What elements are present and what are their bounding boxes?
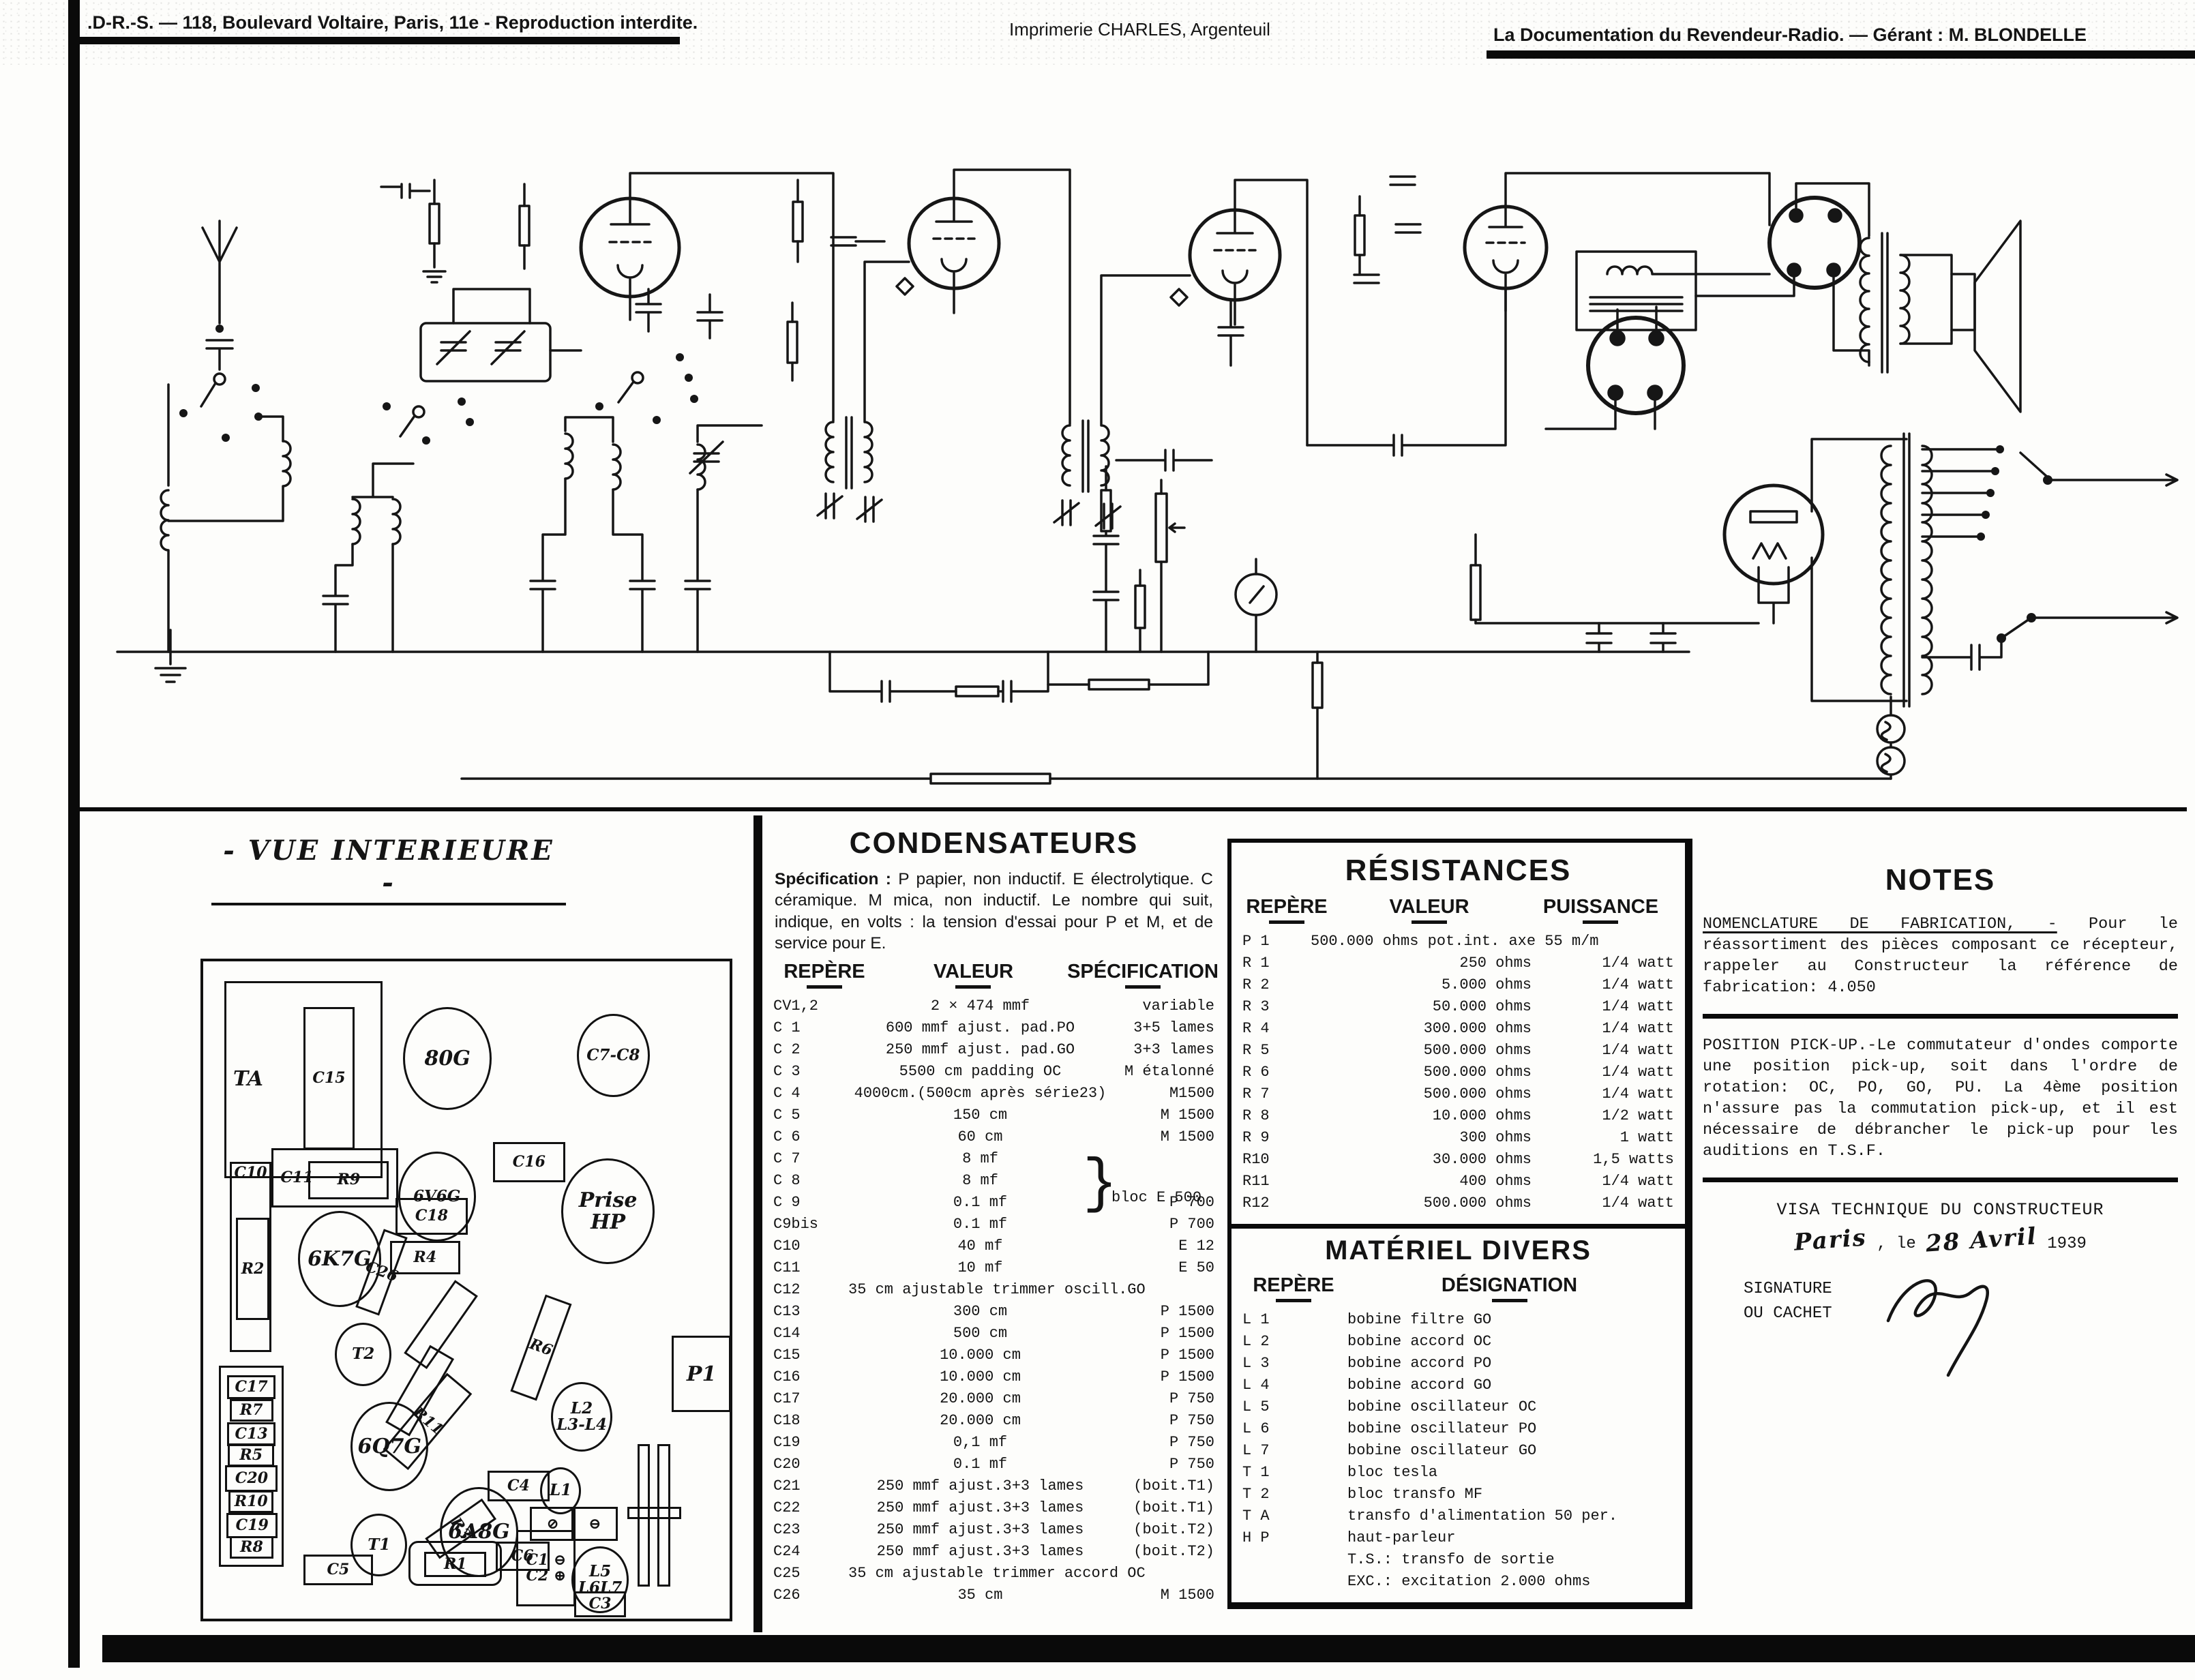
table-row: C12 35 cm ajustable trimmer oscill.GO [773,1279,1214,1301]
table-row: C13 300 cm P 1500 [773,1301,1214,1323]
table-row: R 3 50.000 ohms 1/4 watt [1242,996,1674,1018]
note-position-pickup: POSITION PICK-UP.-Le commutateur d'ondes… [1703,1035,2178,1162]
table-row: R 8 10.000 ohms 1/2 watt [1242,1105,1674,1127]
resistances-title: RÉSISTANCES [1242,854,1674,888]
table-row: L 5 bobine oscillateur OC [1242,1396,1674,1418]
col-repere: REPÈRE [1246,896,1327,924]
table-row: C 4 4000cm.(500cm après série23) M1500 [773,1083,1214,1105]
table-row: T A transfo d'alimentation 50 per. [1242,1505,1674,1527]
note-lead: NOMENCLATURE DE FABRICATION, - [1703,915,2057,933]
visa-day-handwritten: 28 Avril [1925,1222,2038,1257]
table-row: T 2 bloc transfo MF [1242,1484,1674,1505]
col-valeur: VALEUR [934,961,1013,989]
table-row: C26 35 cm M 1500 [773,1585,1214,1606]
table-row: EXC.: excitation 2.000 ohms [1242,1571,1674,1593]
table-row: C14 500 cm P 1500 [773,1323,1214,1345]
table-row: C23 250 mmf ajust.3+3 lames (boit.T2) [773,1519,1214,1541]
visa-line: VISA TECHNIQUE DU CONSTRUCTEUR [1703,1200,2178,1220]
vue-interieure-panel: - VUE INTERIEURE - TAC15C16C10R2C11R9C18… [89,815,747,1632]
chassis-part-labels [203,961,730,1619]
col-repere: REPÈRE [783,961,865,989]
col-valeur: VALEUR [1389,896,1469,924]
resistances-box: RÉSISTANCES REPÈRE VALEUR PUISSANCE P 1 … [1227,839,1692,1609]
table-row: L 7 bobine oscillateur GO [1242,1440,1674,1462]
table-row: C17 20.000 cm P 750 [773,1388,1214,1410]
table-row: R11 400 ohms 1/4 watt [1242,1171,1674,1192]
table-row: C18 20.000 cm P 750 [773,1410,1214,1432]
condensateurs-title: CONDENSATEURS [773,826,1214,860]
publication-title: La Documentation du Revendeur-Radio. — G… [1493,25,2087,46]
signature-caption-line2: OU CACHET [1744,1302,1832,1326]
table-row: L 6 bobine oscillateur PO [1242,1418,1674,1440]
signature-scribble [1880,1267,2071,1383]
table-row: R10 30.000 ohms 1,5 watts [1242,1149,1674,1171]
table-row: R 6 500.000 ohms 1/4 watt [1242,1062,1674,1083]
section-divider [1231,1224,1685,1229]
table-row: C 1 600 mmf ajust. pad.PO 3+5 lames [773,1017,1214,1039]
table-row: C 2 250 mmf ajust. pad.GO 3+3 lames [773,1039,1214,1061]
table-row: C 5 150 cm M 1500 [773,1105,1214,1126]
visa-year: 1939 [2047,1235,2087,1253]
table-row: C15 10.000 cm P 1500 [773,1345,1214,1366]
table-row: L 3 bobine accord PO [1242,1353,1674,1375]
col-puissance: PUISSANCE [1543,896,1658,924]
table-row: C25 35 cm ajustable trimmer accord OC [773,1563,1214,1585]
table-row: CV1,2 2 × 474 mmf variable [773,995,1214,1017]
chassis-outline: TAC15C16C10R2C11R9C18R4P1C17R7C13R5C20R1… [200,959,732,1621]
materiel-header: REPÈRE DÉSIGNATION [1242,1274,1674,1302]
visa-le: , le [1877,1235,1916,1253]
signature-caption: SIGNATURE OU CACHET [1744,1277,1832,1326]
condensateurs-spec-note: Spécification : P papier, non inductif. … [775,869,1213,954]
header-rule-left [80,37,680,44]
note-nomenclature: NOMENCLATURE DE FABRICATION, - Pour le r… [1703,914,2178,998]
table-row: C 3 5500 cm padding OC M étalonné [773,1061,1214,1083]
table-row: R 1 250 ohms 1/4 watt [1242,952,1674,974]
col-specification: SPÉCIFICATION [1067,961,1219,989]
table-row: H P haut-parleur [1242,1527,1674,1549]
notes-section: NOTES NOMENCLATURE DE FABRICATION, - Pou… [1703,815,2183,1632]
condensateurs-header: REPÈRE VALEUR SPÉCIFICATION [773,961,1214,989]
page-frame-left [68,0,80,1668]
table-row: C 7 8 mf [773,1148,1214,1170]
resistances-table: P 1 500.000 ohms pot.int. axe 55 m/m R 1… [1242,931,1674,1214]
table-row: R 4 300.000 ohms 1/4 watt [1242,1018,1674,1040]
table-row: R 9 300 ohms 1 watt [1242,1127,1674,1149]
page: { "header": { "left": ".D-R.-S. — 118, B… [0,0,2195,1680]
materiel-title: MATÉRIEL DIVERS [1242,1235,1674,1266]
visa-city-handwritten: Paris [1793,1224,1868,1256]
schematic-labels [80,57,2187,807]
table-row: T 1 bloc tesla [1242,1462,1674,1484]
publisher-address: .D-R.-S. — 118, Boulevard Voltaire, Pari… [87,12,698,33]
col-repere: REPÈRE [1253,1274,1334,1302]
resistances-section: RÉSISTANCES REPÈRE VALEUR PUISSANCE P 1 … [1227,815,1692,1632]
signature-caption-line1: SIGNATURE [1744,1277,1832,1302]
table-row: R 2 5.000 ohms 1/4 watt [1242,974,1674,996]
col-designation: DÉSIGNATION [1442,1274,1577,1302]
spec-lead: Spécification : [775,870,891,888]
vue-interieure-title: - VUE INTERIEURE - [211,835,566,905]
table-row: R 5 500.000 ohms 1/4 watt [1242,1040,1674,1062]
notes-rule-1 [1703,1014,2178,1019]
materiel-divers-section: MATÉRIEL DIVERS REPÈRE DÉSIGNATION L 1 b… [1242,1235,1674,1593]
note-lead: POSITION PICK-UP.- [1703,1036,1877,1055]
table-row: C19 0,1 mf P 750 [773,1432,1214,1454]
resistances-header: REPÈRE VALEUR PUISSANCE [1242,896,1674,924]
table-row: C22 250 mmf ajust.3+3 lames (boit.T1) [773,1497,1214,1519]
schematic-bottom-rule [80,807,2187,811]
table-row: L 4 bobine accord GO [1242,1375,1674,1396]
table-row: R 7 500.000 ohms 1/4 watt [1242,1083,1674,1105]
table-row: L 1 bobine filtre GO [1242,1309,1674,1331]
page-frame-bottom [102,1635,2195,1662]
visa-date: Paris , le 28 Avril 1939 [1703,1227,2178,1254]
circuit-schematic [80,57,2187,807]
table-row: C21 250 mmf ajust.3+3 lames (boit.T1) [773,1475,1214,1497]
notes-title: NOTES [1703,863,2178,897]
table-row: C20 0.1 mf P 750 [773,1454,1214,1475]
table-row: R12 500.000 ohms 1/4 watt [1242,1192,1674,1214]
materiel-table: L 1 bobine filtre GO L 2 bobine accord O… [1242,1309,1674,1593]
condensateurs-section: CONDENSATEURS Spécification : P papier, … [753,815,1223,1632]
table-row: C10 40 mf E 12 [773,1235,1214,1257]
table-row: L 2 bobine accord OC [1242,1331,1674,1353]
condensateurs-table: CV1,2 2 × 474 mmf variable C 1 600 mmf a… [773,995,1214,1606]
table-row: C9bis 0.1 mf P 700 [773,1214,1214,1235]
table-row: C16 10.000 cm P 1500 [773,1366,1214,1388]
notes-rule-2 [1703,1177,2178,1182]
table-row: C 6 60 cm M 1500 [773,1126,1214,1148]
table-row: C24 250 mmf ajust.3+3 lames (boit.T2) [773,1541,1214,1563]
printer-credit: Imprimerie CHARLES, Argenteuil [1009,19,1270,40]
bloc-label: bloc E 500 [1111,1189,1201,1206]
signature-block: SIGNATURE OU CACHET [1703,1277,2178,1383]
table-row: T.S.: transfo de sortie [1242,1549,1674,1571]
table-row: P 1 500.000 ohms pot.int. axe 55 m/m [1242,931,1674,952]
table-row: C11 10 mf E 50 [773,1257,1214,1279]
